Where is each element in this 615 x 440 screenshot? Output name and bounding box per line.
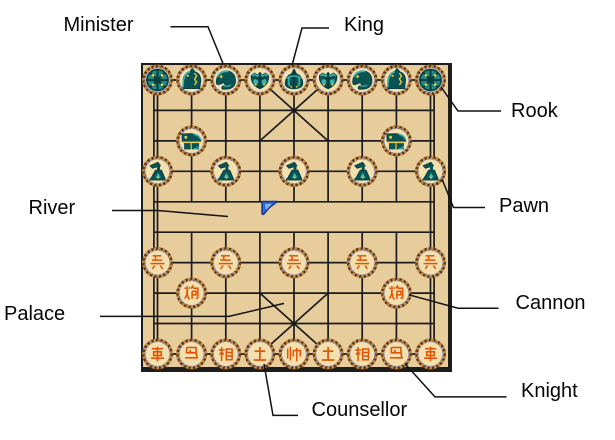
svg-text:River: River: [29, 197, 76, 219]
svg-text:Palace: Palace: [4, 303, 65, 325]
svg-text:Minister: Minister: [64, 14, 134, 36]
svg-text:Rook: Rook: [511, 100, 559, 122]
svg-text:Knight: Knight: [521, 380, 578, 402]
svg-text:Pawn: Pawn: [499, 195, 549, 217]
svg-text:Counsellor: Counsellor: [312, 399, 408, 421]
svg-text:King: King: [344, 14, 384, 36]
svg-text:Cannon: Cannon: [516, 292, 586, 314]
